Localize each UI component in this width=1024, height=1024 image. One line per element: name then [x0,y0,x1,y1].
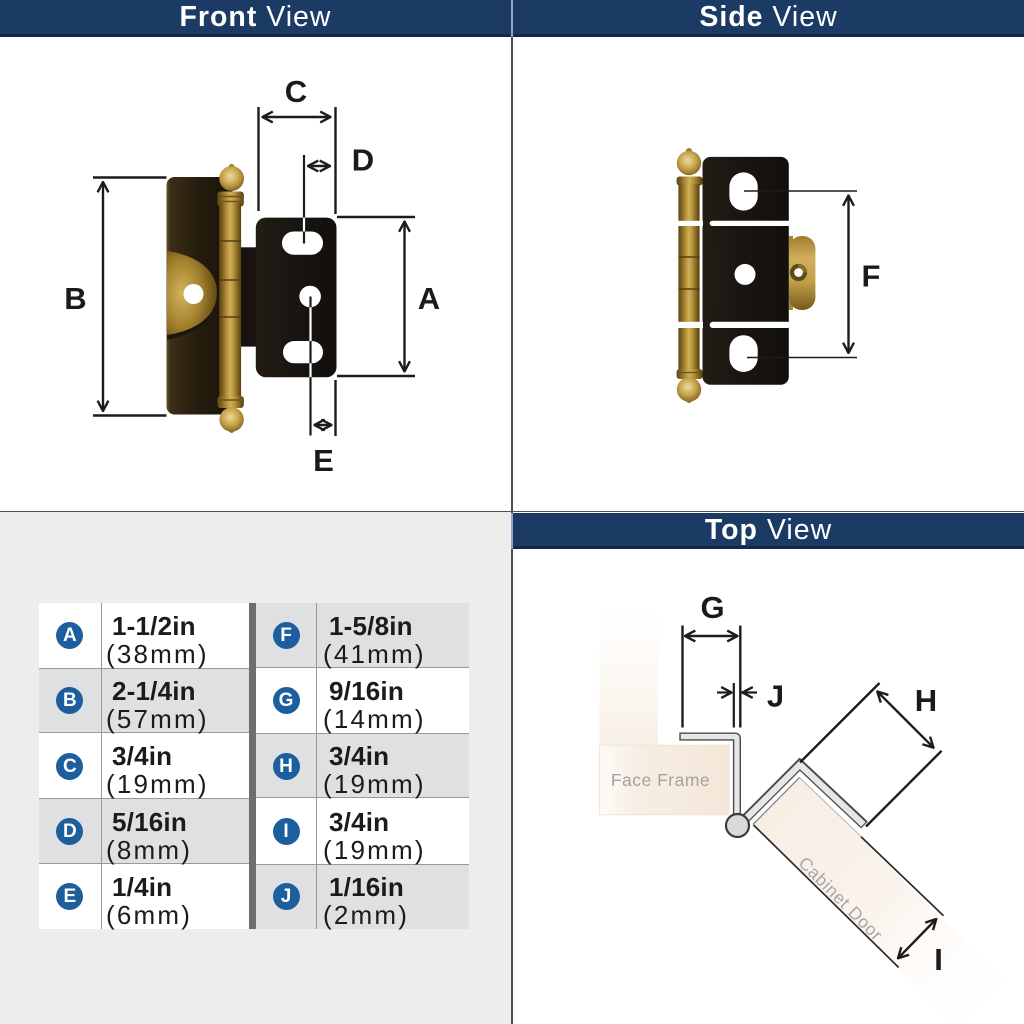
svg-text:B: B [64,281,86,316]
svg-text:H: H [915,683,937,718]
svg-text:Face Frame: Face Frame [611,770,710,790]
svg-text:E: E [313,443,334,478]
svg-text:F: F [862,259,881,294]
svg-text:D: D [352,143,374,178]
svg-text:G: G [700,590,724,625]
svg-text:A: A [418,281,440,316]
svg-text:C: C [285,74,307,109]
svg-text:I: I [934,942,943,977]
svg-text:3/8IN 3/4: 3/8IN 3/4 [712,248,723,298]
svg-text:J: J [767,679,784,714]
